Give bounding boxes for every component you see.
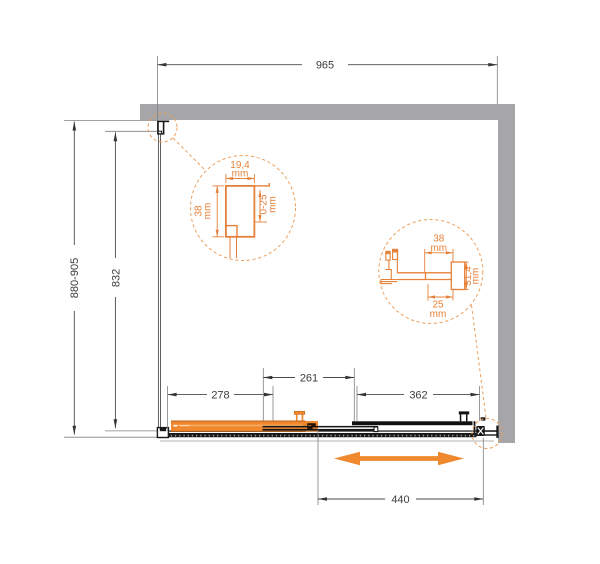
svg-text:261: 261 [300,372,318,384]
svg-text:mm: mm [430,309,447,320]
svg-text:mm: mm [202,203,213,220]
svg-text:mm: mm [232,168,249,179]
svg-text:832: 832 [110,269,122,287]
svg-text:965: 965 [316,60,334,72]
svg-text:mm: mm [267,196,278,213]
svg-text:880-905: 880-905 [69,258,81,298]
svg-text:362: 362 [409,389,427,401]
svg-text:mm: mm [430,243,447,254]
svg-text:440: 440 [391,494,409,506]
svg-text:278: 278 [211,389,229,401]
svg-text:mm: mm [471,268,482,285]
